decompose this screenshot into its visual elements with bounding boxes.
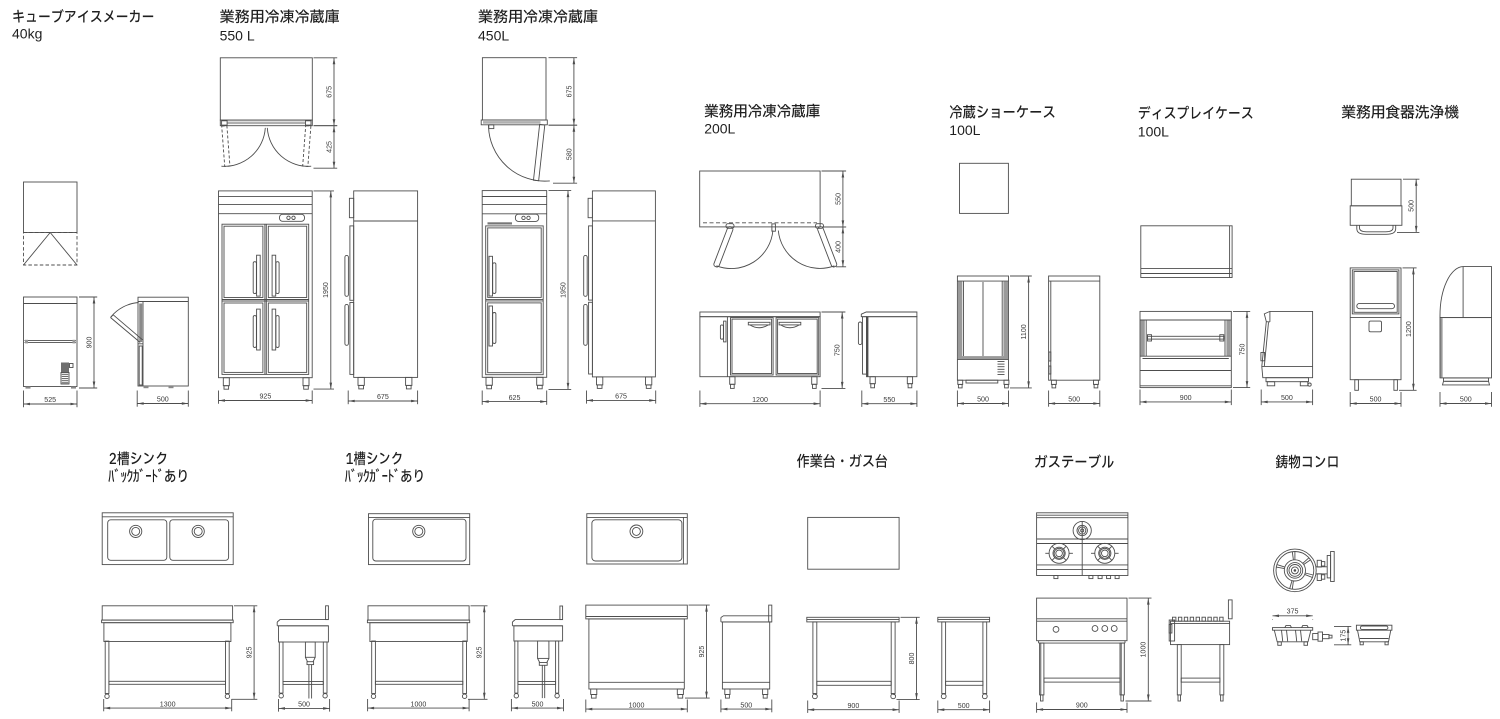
svg-text:500: 500 (298, 701, 310, 709)
svg-text:900: 900 (1180, 394, 1192, 402)
svg-text:750: 750 (1238, 344, 1246, 356)
svg-text:40kg: 40kg (12, 26, 42, 42)
svg-text:1300: 1300 (160, 700, 176, 708)
svg-text:375: 375 (1287, 608, 1299, 616)
svg-text:675: 675 (615, 393, 627, 401)
svg-text:525: 525 (44, 396, 56, 404)
svg-text:900: 900 (85, 337, 93, 349)
svg-text:100L: 100L (1138, 124, 1169, 140)
svg-text:925: 925 (246, 647, 254, 659)
svg-text:1200: 1200 (1405, 321, 1413, 337)
svg-text:1000: 1000 (629, 701, 645, 709)
svg-text:900: 900 (1076, 702, 1088, 710)
svg-text:500: 500 (958, 702, 970, 710)
svg-text:550: 550 (834, 193, 842, 205)
svg-text:750: 750 (834, 344, 842, 356)
svg-text:925: 925 (259, 393, 271, 401)
svg-text:500: 500 (157, 396, 169, 404)
svg-text:1950: 1950 (322, 282, 330, 298)
svg-text:500: 500 (1460, 396, 1472, 404)
svg-text:900: 900 (847, 702, 859, 710)
svg-text:1000: 1000 (1140, 642, 1148, 658)
svg-text:625: 625 (509, 394, 521, 402)
svg-text:1200: 1200 (752, 396, 768, 404)
svg-text:675: 675 (565, 86, 573, 98)
svg-text:500: 500 (1370, 396, 1382, 404)
svg-text:675: 675 (377, 393, 389, 401)
svg-text:500: 500 (977, 396, 989, 404)
svg-text:550 L: 550 L (220, 28, 255, 44)
svg-text:500: 500 (532, 700, 544, 708)
svg-text:500: 500 (1408, 200, 1416, 212)
svg-text:175: 175 (1341, 630, 1348, 642)
svg-text:925: 925 (476, 647, 484, 659)
svg-text:550: 550 (883, 396, 895, 404)
svg-text:200L: 200L (704, 121, 735, 137)
svg-text:1950: 1950 (559, 282, 567, 298)
svg-text:800: 800 (908, 653, 916, 665)
svg-text:100L: 100L (949, 122, 980, 138)
svg-text:580: 580 (565, 148, 573, 160)
svg-text:425: 425 (325, 141, 333, 153)
svg-text:400: 400 (834, 241, 842, 253)
svg-text:1100: 1100 (1020, 324, 1028, 339)
svg-text:500: 500 (1068, 396, 1080, 404)
svg-text:500: 500 (1281, 394, 1293, 402)
svg-text:675: 675 (325, 86, 333, 98)
svg-text:1000: 1000 (411, 700, 427, 708)
svg-text:500: 500 (740, 701, 752, 709)
svg-text:925: 925 (698, 646, 706, 658)
svg-text:450L: 450L (478, 28, 509, 44)
